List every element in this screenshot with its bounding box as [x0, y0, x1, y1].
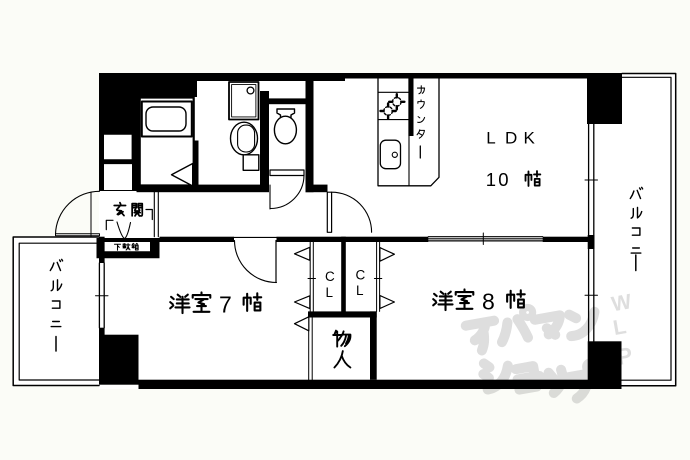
svg-text:W: W — [610, 290, 634, 316]
svg-text:L: L — [326, 285, 334, 300]
svg-text:C: C — [356, 268, 366, 283]
svg-text:D: D — [505, 129, 517, 148]
svg-text:K: K — [524, 129, 536, 148]
svg-text:7: 7 — [219, 292, 232, 318]
svg-text:8: 8 — [482, 289, 495, 315]
svg-text:L: L — [356, 283, 364, 298]
svg-text:1: 1 — [486, 169, 496, 190]
svg-text:L: L — [486, 129, 495, 148]
svg-text:0: 0 — [498, 169, 508, 190]
svg-text:C: C — [325, 269, 335, 284]
